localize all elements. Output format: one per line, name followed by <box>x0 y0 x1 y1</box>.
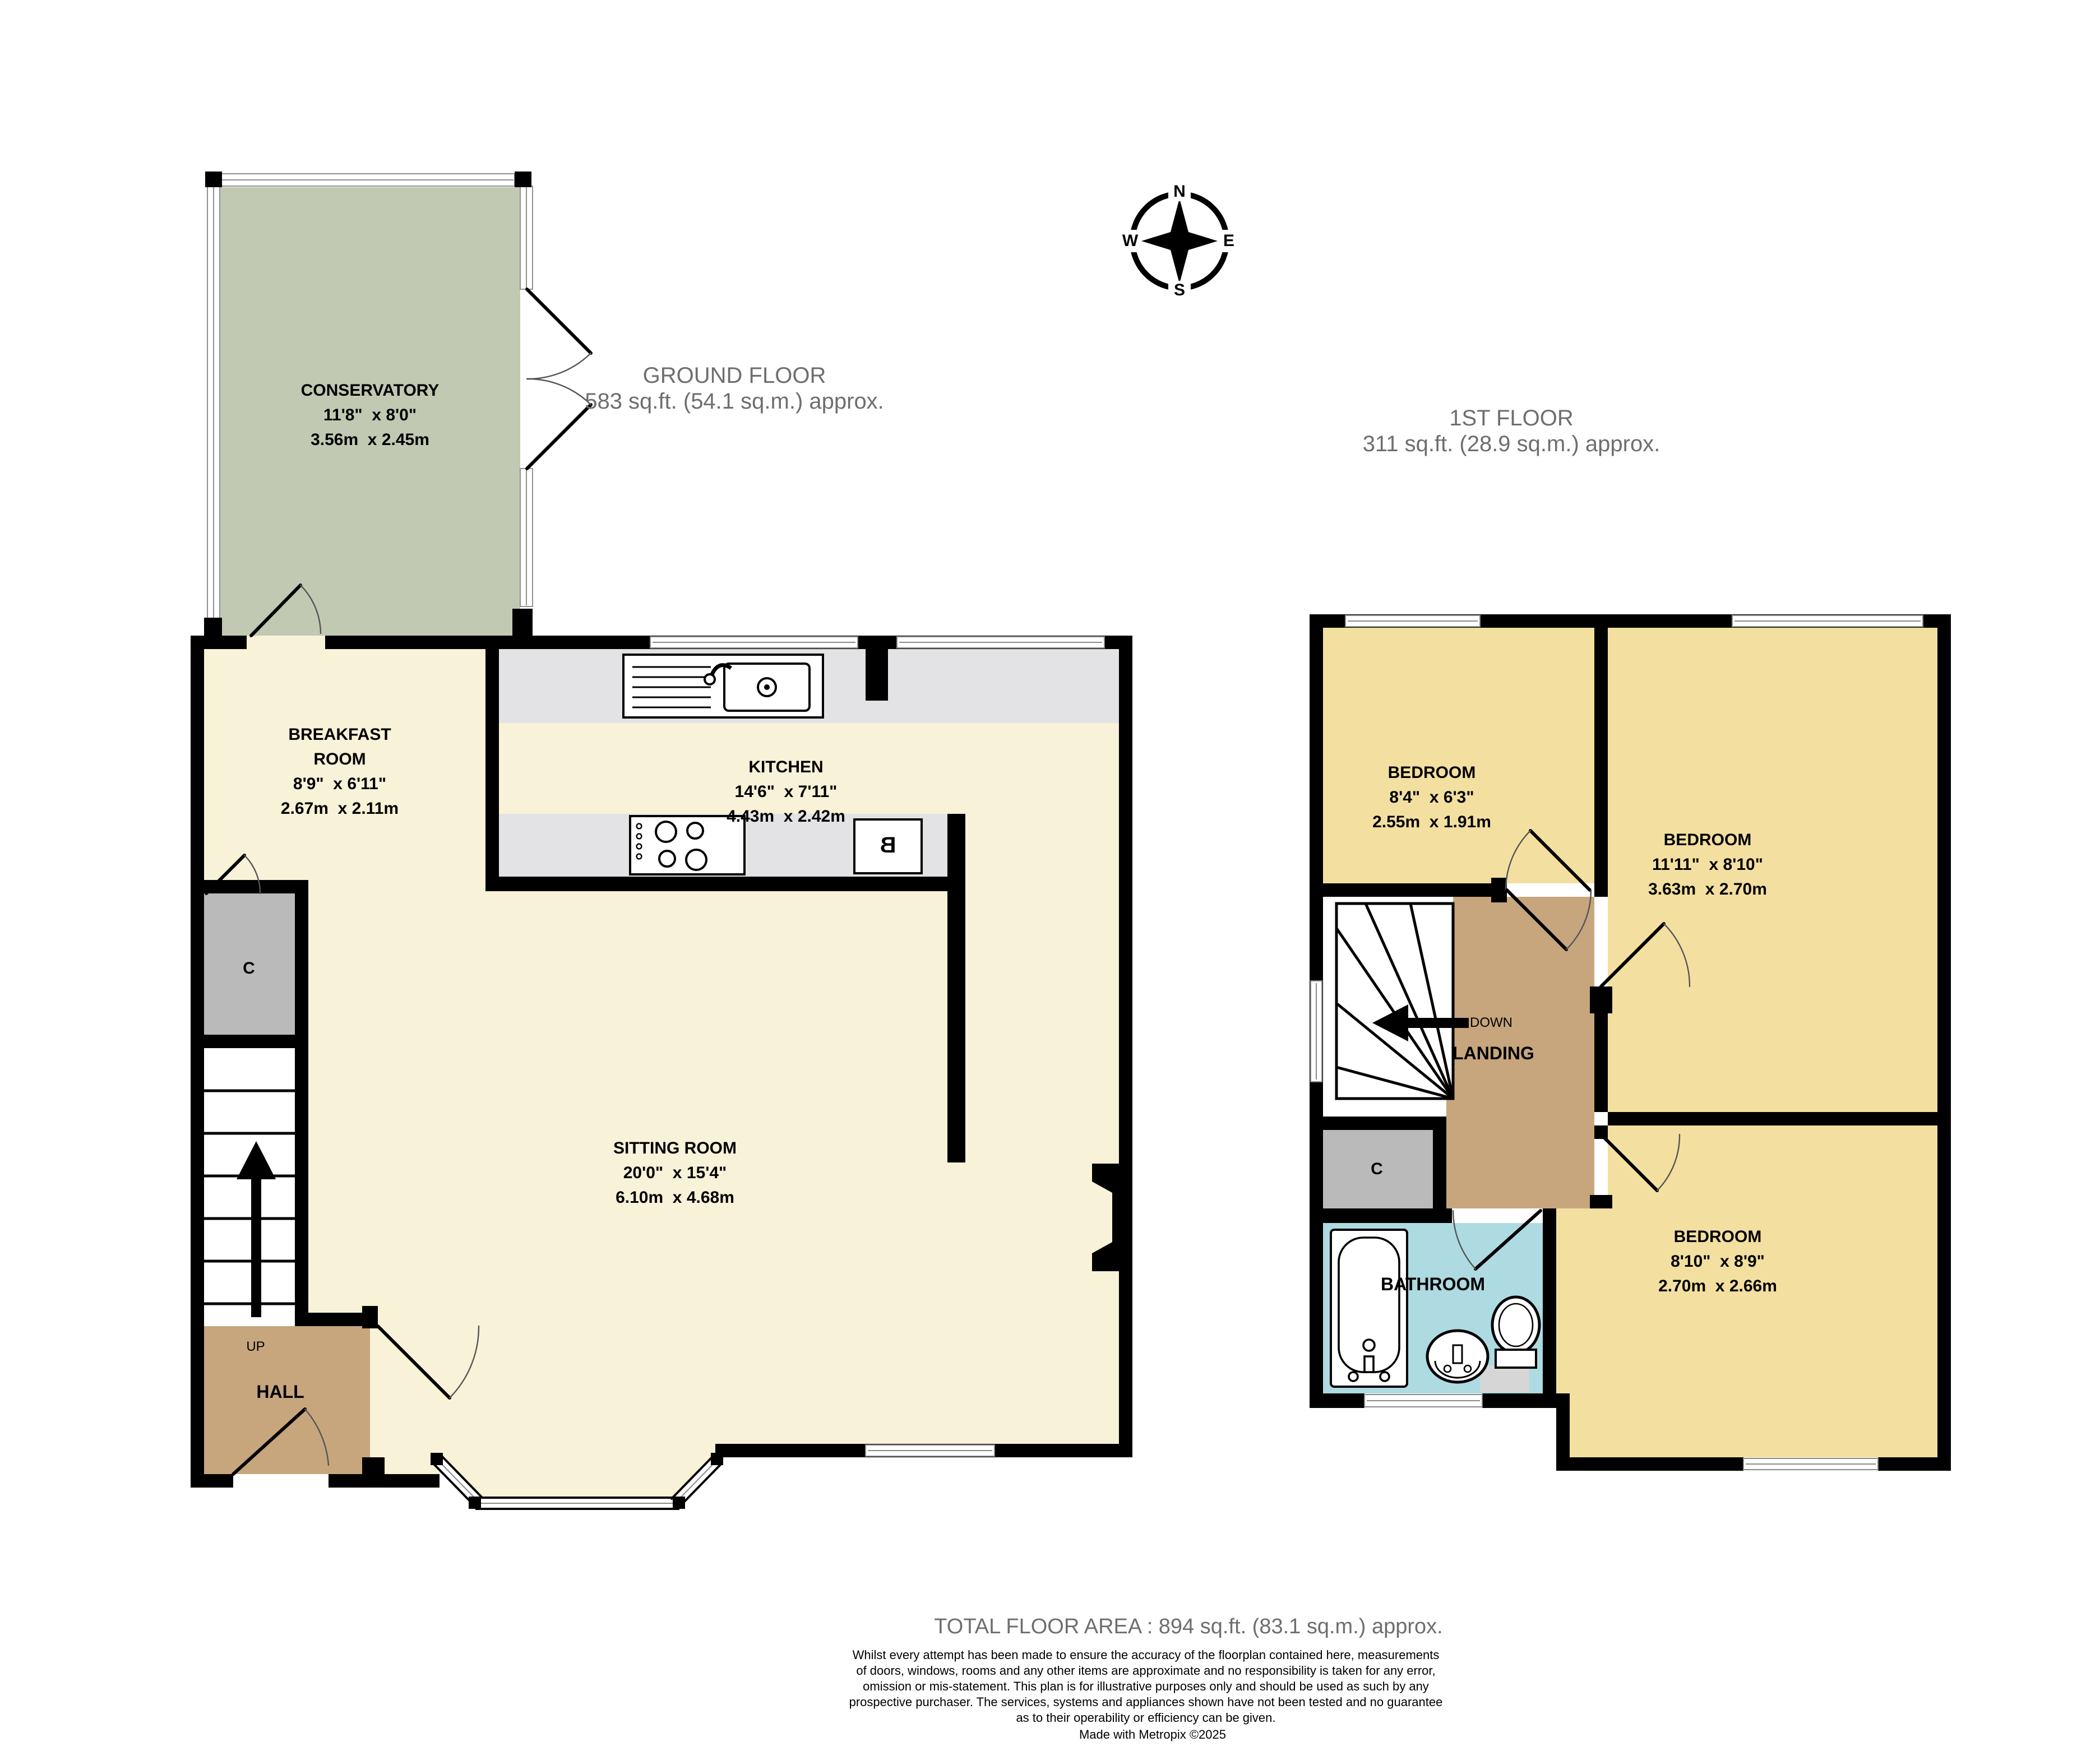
bedroom-bottom-label: BEDROOM 8'10" x 8'9" 2.70m x 2.66m <box>1658 1225 1777 1299</box>
landing-label: LANDING <box>1453 1045 1534 1065</box>
hall-label: HALL <box>256 1383 304 1403</box>
up-label: UP <box>246 1338 265 1354</box>
breakfast-room-label: BREAKFAST ROOM 8'9" x 6'11" 2.67m x 2.11… <box>281 723 399 822</box>
closet-ground-label: C <box>243 959 255 978</box>
ground-floor-title: GROUND FLOOR <box>643 364 826 390</box>
kitchen-label: KITCHEN 14'6" x 7'11" 4.43m x 2.42m <box>727 756 845 830</box>
sink-icon <box>623 655 823 717</box>
bedroom-small-window <box>1345 615 1480 627</box>
kitchen-window-1 <box>650 637 858 648</box>
compass-star-icon <box>1141 198 1218 284</box>
basin-icon <box>1427 1331 1488 1382</box>
sitting-room-label: SITTING ROOM 20'0" x 15'4" 6.10m x 4.68m <box>613 1137 737 1211</box>
compass-north: N <box>1171 182 1188 201</box>
compass-east: E <box>1221 231 1237 251</box>
sitting-room-window <box>866 1445 995 1456</box>
up-arrow-icon <box>251 1177 261 1317</box>
stairs-up <box>204 1048 295 1326</box>
fireplace-icon <box>1092 1164 1119 1271</box>
kitchen-window-2 <box>897 637 1104 648</box>
first-floor-title: 1ST FLOOR <box>1449 406 1574 432</box>
bedroom-small-floor <box>1323 628 1594 883</box>
disclaimer-text: Whilst every attempt has been made to en… <box>720 1648 1572 1726</box>
bathroom-window <box>1364 1395 1482 1407</box>
down-label: DOWN <box>1470 1015 1512 1030</box>
landing-window <box>1311 981 1322 1082</box>
credit-text: Made with Metropix ©2025 <box>1079 1729 1226 1742</box>
floorplan-canvas: N E S W GROUND FLOOR 583 sq.ft. (54.1 sq… <box>0 0 2100 1751</box>
doorway-conservatory <box>247 636 325 649</box>
bedroom-small-label: BEDROOM 8'4" x 6'3" 2.55m x 1.91m <box>1372 761 1491 835</box>
boiler-label: B <box>880 833 896 859</box>
ground-floor-area-text: 583 sq.ft. (54.1 sq.m.) approx. <box>585 390 884 415</box>
bathroom-label: BATHROOM <box>1381 1276 1485 1296</box>
compass-south: S <box>1172 281 1187 300</box>
bath-icon <box>1331 1230 1407 1387</box>
conservatory-label: CONSERVATORY 11'8" x 8'0" 3.56m x 2.45m <box>301 379 440 453</box>
door-conservatory-french <box>527 289 591 469</box>
first-floor-area-text: 311 sq.ft. (28.9 sq.m.) approx. <box>1363 432 1660 458</box>
stairs-down <box>1336 904 1469 1099</box>
floorplan-graphic <box>0 0 2100 1751</box>
floorplan-page: N E S W GROUND FLOOR 583 sq.ft. (54.1 sq… <box>0 0 2100 1751</box>
down-arrow-icon <box>1404 1018 1469 1028</box>
bedroom-right-window <box>1732 615 1923 627</box>
closet-first-label: C <box>1371 1160 1383 1179</box>
toilet-mat <box>1480 1365 1529 1392</box>
bedroom-bottom-window <box>1743 1458 1878 1470</box>
compass-west: W <box>1120 231 1140 251</box>
total-floor-area: TOTAL FLOOR AREA : 894 sq.ft. (83.1 sq.m… <box>934 1615 1442 1640</box>
first-floor-plan <box>1310 614 1951 1471</box>
toilet-icon <box>1492 1297 1539 1368</box>
bedroom-right-label: BEDROOM 11'11" x 8'10" 3.63m x 2.70m <box>1648 828 1767 902</box>
